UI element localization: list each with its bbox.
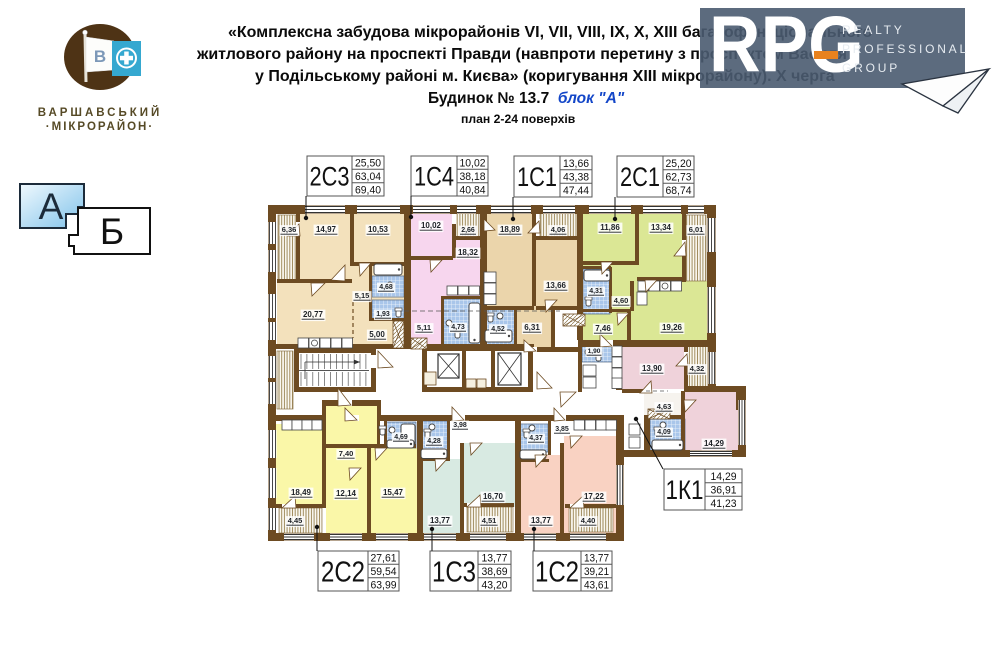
svg-text:15,47: 15,47 bbox=[383, 488, 404, 497]
svg-text:4,69: 4,69 bbox=[394, 434, 408, 441]
svg-text:16,70: 16,70 bbox=[483, 492, 504, 501]
svg-text:25,50: 25,50 bbox=[355, 158, 381, 170]
svg-text:3,98: 3,98 bbox=[453, 422, 467, 429]
svg-text:68,74: 68,74 bbox=[666, 185, 692, 197]
svg-text:36,91: 36,91 bbox=[711, 485, 737, 497]
svg-text:2С1: 2С1 bbox=[620, 162, 660, 192]
svg-text:6,01: 6,01 bbox=[689, 225, 704, 234]
svg-text:13,66: 13,66 bbox=[563, 158, 589, 170]
svg-text:13,77: 13,77 bbox=[584, 553, 609, 565]
svg-text:4,68: 4,68 bbox=[379, 284, 393, 291]
svg-text:14,97: 14,97 bbox=[316, 225, 337, 234]
svg-text:4,06: 4,06 bbox=[551, 225, 566, 234]
svg-text:1С2: 1С2 bbox=[535, 556, 579, 588]
svg-text:3,85: 3,85 bbox=[555, 426, 569, 433]
svg-text:4,28: 4,28 bbox=[427, 438, 441, 445]
svg-text:62,73: 62,73 bbox=[666, 172, 692, 184]
svg-text:4,32: 4,32 bbox=[690, 364, 705, 373]
svg-text:43,38: 43,38 bbox=[563, 172, 589, 184]
svg-text:4,52: 4,52 bbox=[491, 326, 505, 333]
svg-text:14,29: 14,29 bbox=[704, 439, 725, 448]
svg-text:13,90: 13,90 bbox=[642, 364, 663, 373]
svg-text:6,36: 6,36 bbox=[282, 225, 297, 234]
svg-text:27,61: 27,61 bbox=[371, 553, 397, 565]
svg-text:5,15: 5,15 bbox=[355, 291, 370, 300]
svg-text:2,66: 2,66 bbox=[461, 227, 475, 234]
svg-text:38,18: 38,18 bbox=[460, 171, 486, 183]
svg-text:41,23: 41,23 bbox=[711, 498, 737, 510]
svg-text:1С1: 1С1 bbox=[517, 162, 557, 192]
svg-text:5,00: 5,00 bbox=[369, 330, 385, 339]
svg-text:40,84: 40,84 bbox=[460, 184, 486, 196]
svg-text:4,09: 4,09 bbox=[657, 429, 671, 436]
svg-text:2С3: 2С3 bbox=[310, 162, 350, 192]
svg-text:1К1: 1К1 bbox=[666, 475, 704, 505]
svg-text:13,66: 13,66 bbox=[546, 281, 567, 290]
svg-text:5,11: 5,11 bbox=[417, 323, 431, 332]
svg-text:13,34: 13,34 bbox=[651, 223, 672, 232]
svg-text:4,51: 4,51 bbox=[482, 516, 497, 525]
svg-text:20,77: 20,77 bbox=[303, 310, 324, 319]
svg-text:1С4: 1С4 bbox=[414, 162, 454, 192]
svg-text:4,37: 4,37 bbox=[529, 435, 543, 442]
svg-text:63,04: 63,04 bbox=[355, 171, 381, 183]
svg-text:43,20: 43,20 bbox=[482, 579, 508, 591]
svg-text:18,49: 18,49 bbox=[291, 488, 312, 497]
svg-text:18,89: 18,89 bbox=[500, 225, 521, 234]
svg-text:38,69: 38,69 bbox=[482, 566, 508, 578]
svg-text:11,86: 11,86 bbox=[600, 223, 620, 232]
svg-text:14,29: 14,29 bbox=[711, 471, 737, 483]
svg-text:4,73: 4,73 bbox=[451, 324, 465, 331]
svg-text:6,31: 6,31 bbox=[524, 323, 540, 332]
svg-text:7,40: 7,40 bbox=[339, 449, 354, 458]
svg-text:25,20: 25,20 bbox=[666, 158, 692, 170]
svg-text:17,22: 17,22 bbox=[584, 492, 605, 501]
svg-text:2С2: 2С2 bbox=[321, 556, 365, 588]
svg-text:69,40: 69,40 bbox=[355, 184, 381, 196]
svg-text:47,44: 47,44 bbox=[563, 185, 589, 197]
svg-text:10,02: 10,02 bbox=[421, 221, 442, 230]
svg-text:13,77: 13,77 bbox=[531, 516, 552, 525]
svg-text:7,46: 7,46 bbox=[595, 324, 611, 333]
svg-text:4,60: 4,60 bbox=[614, 296, 629, 305]
svg-text:1,93: 1,93 bbox=[376, 311, 390, 318]
svg-text:13,77: 13,77 bbox=[430, 516, 451, 525]
svg-text:1С3: 1С3 bbox=[432, 556, 476, 588]
svg-text:19,26: 19,26 bbox=[662, 323, 683, 332]
svg-text:4,31: 4,31 bbox=[589, 288, 603, 295]
svg-text:1,90: 1,90 bbox=[588, 348, 601, 355]
svg-text:63,99: 63,99 bbox=[371, 579, 397, 591]
svg-text:18,32: 18,32 bbox=[458, 248, 479, 257]
svg-text:12,14: 12,14 bbox=[336, 489, 357, 498]
svg-text:10,53: 10,53 bbox=[368, 225, 389, 234]
svg-text:59,54: 59,54 bbox=[371, 566, 397, 578]
svg-text:39,21: 39,21 bbox=[584, 566, 609, 578]
svg-text:4,45: 4,45 bbox=[288, 516, 303, 525]
svg-text:13,77: 13,77 bbox=[482, 553, 508, 565]
svg-text:43,61: 43,61 bbox=[584, 579, 609, 591]
svg-text:10,02: 10,02 bbox=[460, 158, 486, 170]
svg-text:4,40: 4,40 bbox=[581, 516, 596, 525]
svg-text:4,63: 4,63 bbox=[657, 402, 672, 411]
